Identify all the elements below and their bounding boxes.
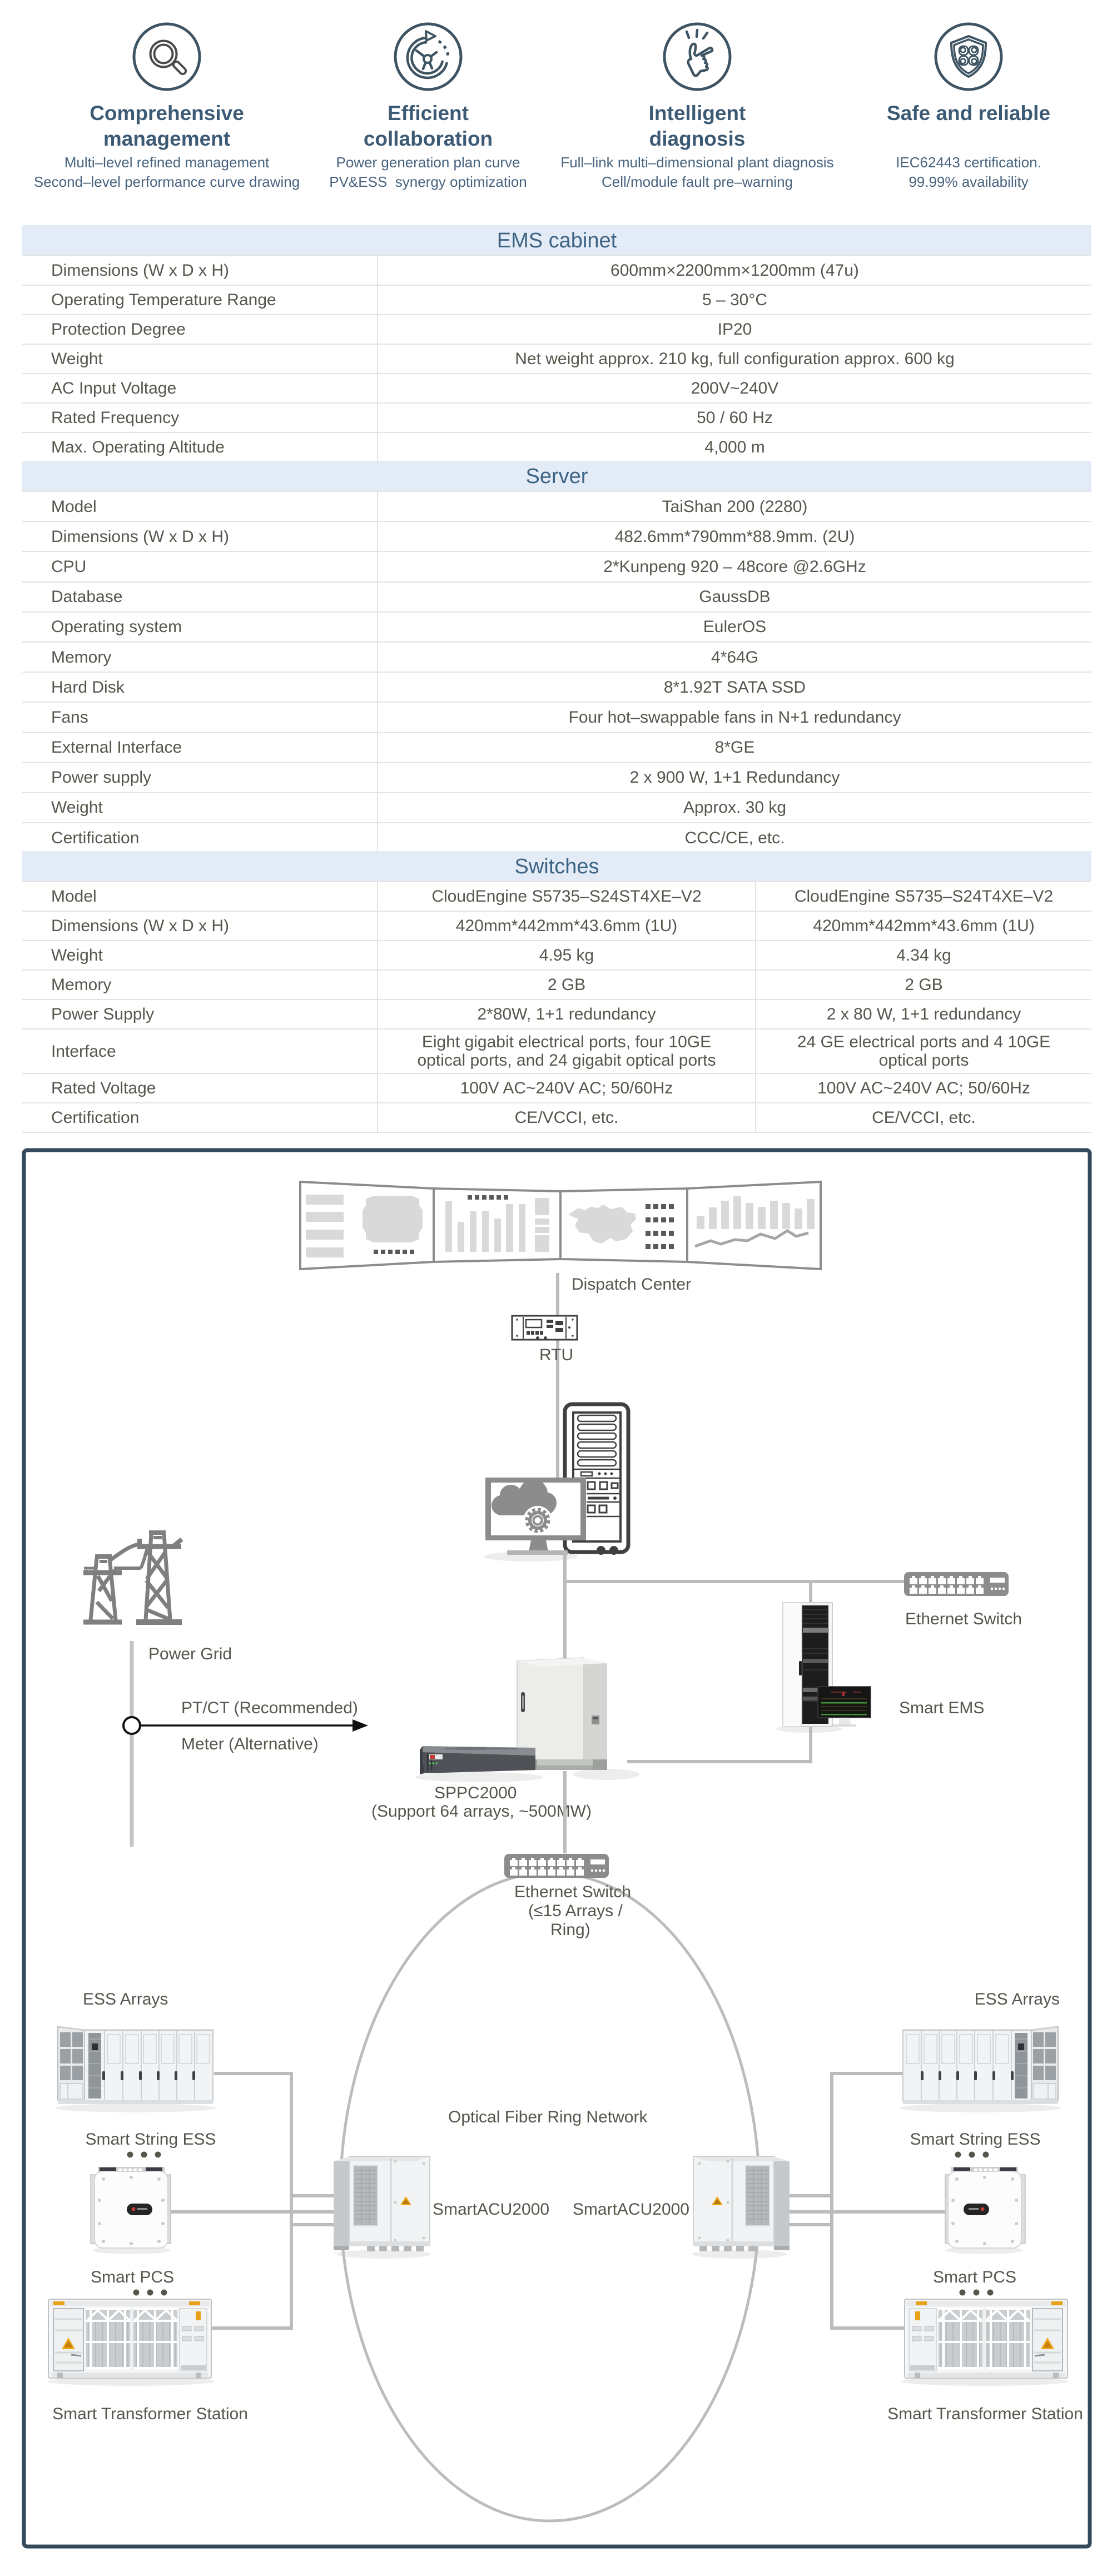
svg-text:Smart EMS: Smart EMS	[899, 1699, 984, 1717]
svg-text:Smart String ESS: Smart String ESS	[910, 2130, 1040, 2149]
svg-text:(Support 64 arrays, ~500MW): (Support 64 arrays, ~500MW)	[371, 1802, 592, 1821]
svg-text:Ethernet Switch: Ethernet Switch	[905, 1610, 1022, 1628]
svg-text:Meter (Alternative): Meter (Alternative)	[181, 1735, 319, 1753]
svg-text:SmartACU2000: SmartACU2000	[433, 2200, 549, 2219]
svg-text:Power Grid: Power Grid	[148, 1645, 232, 1663]
svg-text:Smart PCS: Smart PCS	[91, 2268, 174, 2286]
svg-text:Ethernet Switch: Ethernet Switch	[514, 1883, 631, 1901]
svg-text:SmartACU2000: SmartACU2000	[573, 2200, 689, 2219]
svg-text:Smart String ESS: Smart String ESS	[85, 2130, 216, 2149]
svg-text:Smart Transformer Station: Smart Transformer Station	[887, 2405, 1083, 2423]
svg-text:ESS Arrays: ESS Arrays	[975, 1990, 1060, 2008]
svg-text:Dispatch Center: Dispatch Center	[572, 1275, 691, 1294]
svg-text:PT/CT (Recommended): PT/CT (Recommended)	[181, 1699, 358, 1717]
svg-text:ESS Arrays: ESS Arrays	[83, 1990, 168, 2008]
svg-text:Ring): Ring)	[550, 1921, 590, 1939]
svg-text:(≤15 Arrays /: (≤15 Arrays /	[528, 1902, 623, 1920]
svg-text:SPPC2000: SPPC2000	[434, 1784, 517, 1802]
svg-text:Smart Transformer Station: Smart Transformer Station	[52, 2405, 248, 2423]
svg-text:Smart PCS: Smart PCS	[933, 2268, 1016, 2286]
svg-text:RTU: RTU	[539, 1346, 573, 1364]
svg-text:Optical Fiber Ring Network: Optical Fiber Ring Network	[448, 2108, 648, 2126]
